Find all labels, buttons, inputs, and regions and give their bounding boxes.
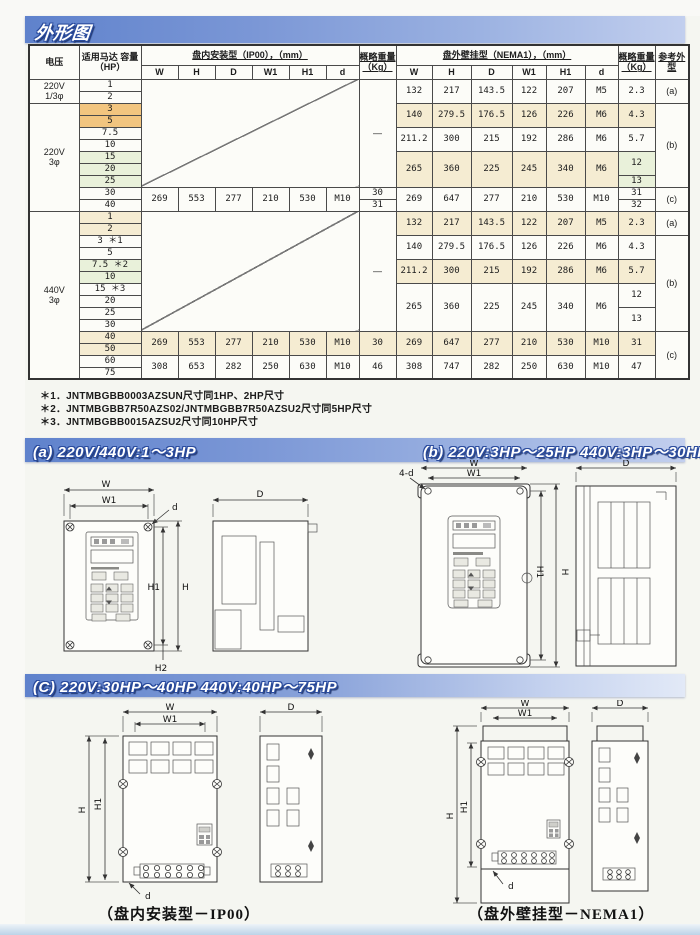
page-bottom-strip <box>0 924 700 935</box>
ip00-w1-cell: 210 <box>252 331 289 355</box>
nema-h-cell: 279.5 <box>432 103 471 127</box>
nema-w-cell: 211.2 <box>396 259 432 283</box>
ip00-h1-cell: 530 <box>289 187 326 211</box>
voltage-line2: 1/3φ <box>30 91 79 101</box>
nema-screw-cell: M6 <box>585 127 618 151</box>
nema-d-cell: 282 <box>471 355 512 379</box>
bottom-cover <box>481 869 569 903</box>
hp-cell: 40 <box>79 199 141 211</box>
nema-h1-cell: 340 <box>546 283 585 331</box>
nema-screw-cell: M6 <box>585 235 618 259</box>
nema-screw-cell: M5 <box>585 211 618 235</box>
nema-w1-cell: 122 <box>512 211 546 235</box>
diagonal-empty-cell <box>141 211 359 331</box>
nema-w1-cell: 210 <box>512 331 546 355</box>
ip00-w-cell: 269 <box>141 187 178 211</box>
col-header-h1: H1 <box>289 65 326 79</box>
nema-h1-cell: 207 <box>546 211 585 235</box>
dim-label-w1: W1 <box>518 709 533 719</box>
hp-cell: 75 <box>79 367 141 379</box>
nema-d-cell: 215 <box>471 259 512 283</box>
col-header-h: H <box>432 65 471 79</box>
hp-cell: 2 <box>79 91 141 103</box>
nema-h1-cell: 226 <box>546 235 585 259</box>
ref-cell: (b) <box>655 235 689 331</box>
hp-cell: 25 <box>79 307 141 319</box>
hp-cell: 10 <box>79 271 141 283</box>
nema-w-cell: 140 <box>396 235 432 259</box>
nema-screw-cell: M10 <box>585 187 618 211</box>
title-bar: 外形图 <box>25 16 685 43</box>
hp-cell: 10 <box>79 139 141 151</box>
dim-label-h: H <box>559 569 569 576</box>
ip00-h-cell: 653 <box>178 355 215 379</box>
col-header-w1: W1 <box>252 65 289 79</box>
hp-cell: 5 <box>79 247 141 259</box>
dim-label-d-small: d <box>145 892 151 902</box>
drawing-b-side-view: D <box>576 460 676 666</box>
drawing-a-side-view: D <box>213 490 317 651</box>
dim-label-h: H <box>182 583 189 593</box>
dim-label-h1: H1 <box>534 566 544 579</box>
nema-w-cell: 265 <box>396 151 432 187</box>
col-header-motor-hp: 适用马达 容量（HP） <box>79 45 141 79</box>
hp-cell: 25 <box>79 175 141 187</box>
ref-cell: (c) <box>655 187 689 211</box>
nema-w-cell: 132 <box>396 79 432 103</box>
nema-h1-cell: 286 <box>546 259 585 283</box>
nema-w1-cell: 122 <box>512 79 546 103</box>
hp-cell: 20 <box>79 163 141 175</box>
dim-label-w1: W1 <box>102 496 117 506</box>
nema-weight-cell: 13 <box>618 307 655 331</box>
col-header-voltage: 电压 <box>29 45 79 79</box>
voltage-line1: 220V <box>30 81 79 91</box>
diagonal-empty-cell <box>141 79 359 187</box>
nema-d-cell: 176.5 <box>471 103 512 127</box>
nema-w1-cell: 192 <box>512 127 546 151</box>
section-b-label: (b) 220V:3HP～25HP 440V:3HP～30HP <box>423 441 700 462</box>
nema-screw-cell: M6 <box>585 103 618 127</box>
drawing-c-nema1: W W1 H H1 d <box>445 700 695 910</box>
col-header-nema-weight: 概略重量（Kg） <box>618 45 655 79</box>
weight-dash-cell: — <box>359 79 396 187</box>
col-header-h1: H1 <box>546 65 585 79</box>
caption-ip00: （盘内安装型－IP00） <box>98 903 260 924</box>
col-header-h: H <box>178 65 215 79</box>
dim-label-h: H <box>446 813 456 820</box>
footnote-list: ＊1．JNTMBGBB0003AZSUN尺寸同1HP、2HP尺寸 ＊2．JNTM… <box>40 390 372 429</box>
ip00-weight-cell: 31 <box>359 199 396 211</box>
col-header-ref: 参考外型 <box>655 45 689 79</box>
dimension-table: 电压 适用马达 容量（HP） 盘内安装型（IP00），（mm） 概略重量（Kg）… <box>28 44 690 380</box>
drawing-c-ip00: W W1 H H1 d <box>55 700 365 902</box>
nema-weight-cell: 12 <box>618 283 655 307</box>
drawing-c-ip00-side-view: D <box>260 703 322 882</box>
hp-cell: 7.5 ＊2 <box>79 259 141 271</box>
voltage-line1: 440V <box>30 285 79 295</box>
hp-cell: 30 <box>79 187 141 199</box>
footnote-1: ＊1．JNTMBGBB0003AZSUN尺寸同1HP、2HP尺寸 <box>40 390 372 403</box>
ip00-weight-cell: 46 <box>359 355 396 379</box>
heatsink-cap <box>483 726 567 741</box>
hp-cell: 40 <box>79 331 141 343</box>
hp-cell: 2 <box>79 223 141 235</box>
col-header-ip00-weight: 概略重量（Kg） <box>359 45 396 79</box>
dim-label-h1: H1 <box>148 583 161 593</box>
dim-label-d: D <box>617 700 624 709</box>
hp-cell: 50 <box>79 343 141 355</box>
col-header-w1: W1 <box>512 65 546 79</box>
dim-label-4d: 4-d <box>399 469 414 479</box>
section-a-label: (a) 220V/440V:1～3HP <box>33 441 196 462</box>
hp-cell: 3 ＊1 <box>79 235 141 247</box>
nema-h1-cell: 630 <box>546 355 585 379</box>
drawing-c-nema1-front-view: W W1 H H1 d <box>446 700 574 903</box>
nema-h-cell: 279.5 <box>432 235 471 259</box>
nema-h1-cell: 340 <box>546 151 585 187</box>
ref-cell: (a) <box>655 79 689 103</box>
nema-screw-cell: M6 <box>585 283 618 331</box>
nema-d-cell: 225 <box>471 283 512 331</box>
nema-d-cell: 277 <box>471 187 512 211</box>
nema-screw-cell: M10 <box>585 331 618 355</box>
nema-d-cell: 143.5 <box>471 211 512 235</box>
voltage-line2: 3φ <box>30 157 79 167</box>
nema-weight-cell: 31 <box>618 331 655 355</box>
nema-h-cell: 360 <box>432 283 471 331</box>
caption-nema: （盘外壁挂型－NEMA1） <box>468 903 654 924</box>
nema-h-cell: 300 <box>432 127 471 151</box>
nema-weight-cell: 32 <box>618 199 655 211</box>
hp-cell: 30 <box>79 319 141 331</box>
nema-w-cell: 269 <box>396 331 432 355</box>
ip00-weight-cell: 30 <box>359 331 396 355</box>
nema-h-cell: 217 <box>432 79 471 103</box>
nema-h-cell: 217 <box>432 211 471 235</box>
nema-d-cell: 143.5 <box>471 79 512 103</box>
nema-h-cell: 300 <box>432 259 471 283</box>
ref-cell: (c) <box>655 331 689 379</box>
nema-d-cell: 176.5 <box>471 235 512 259</box>
page-title: 外形图 <box>34 19 92 45</box>
nema-weight-cell: 2.3 <box>618 211 655 235</box>
nema-weight-cell: 4.3 <box>618 103 655 127</box>
hp-cell: 3 <box>79 103 141 115</box>
nema-w1-cell: 126 <box>512 103 546 127</box>
hp-cell: 7.5 <box>79 127 141 139</box>
section-c-label: (C) 220V:30HP～40HP 440V:40HP～75HP <box>33 676 337 697</box>
ip00-w1-cell: 250 <box>252 355 289 379</box>
ip00-w-cell: 269 <box>141 331 178 355</box>
ip00-h1-cell: 530 <box>289 331 326 355</box>
dim-label-h1: H1 <box>94 798 104 811</box>
drawing-a: W W1 d H1 H H2 <box>48 464 393 676</box>
nema-screw-cell: M6 <box>585 151 618 187</box>
nema-h-cell: 747 <box>432 355 471 379</box>
voltage-cell: 440V 3φ <box>29 211 79 379</box>
dim-label-d: D <box>623 460 630 469</box>
hp-cell: 5 <box>79 115 141 127</box>
dim-label-d-small: d <box>172 503 178 513</box>
drawing-b: 4-d W W1 H1 H <box>398 460 690 672</box>
nema-weight-cell: 5.7 <box>618 127 655 151</box>
col-header-w: W <box>141 65 178 79</box>
weight-dash-cell: — <box>359 211 396 331</box>
voltage-cell: 220V 1/3φ <box>29 79 79 103</box>
hp-cell: 15 ＊3 <box>79 283 141 295</box>
dim-label-d: D <box>257 490 264 500</box>
ip00-weight-cell: 30 <box>359 187 396 199</box>
col-header-d: D <box>471 65 512 79</box>
hp-cell: 60 <box>79 355 141 367</box>
dim-label-w: W <box>470 460 479 469</box>
nema-h1-cell: 530 <box>546 187 585 211</box>
nema-w-cell: 269 <box>396 187 432 211</box>
nema-d-cell: 225 <box>471 151 512 187</box>
nema-weight-cell: 5.7 <box>618 259 655 283</box>
ip00-h1-cell: 630 <box>289 355 326 379</box>
hp-cell: 1 <box>79 211 141 223</box>
dim-label-w: W <box>102 480 111 490</box>
nema-w-cell: 211.2 <box>396 127 432 151</box>
voltage-cell: 220V 3φ <box>29 103 79 211</box>
page-margin-left <box>0 0 25 935</box>
drawing-c-nema1-side-view: D <box>592 700 648 891</box>
nema-screw-cell: M5 <box>585 79 618 103</box>
nema-h1-cell: 226 <box>546 103 585 127</box>
dim-label-w1: W1 <box>467 469 482 479</box>
nema-w-cell: 265 <box>396 283 432 331</box>
nema-w-cell: 140 <box>396 103 432 127</box>
col-header-ip00-group: 盘内安装型（IP00），（mm） <box>141 45 359 65</box>
hp-cell: 20 <box>79 295 141 307</box>
nema-h1-cell: 530 <box>546 331 585 355</box>
nema-w1-cell: 192 <box>512 259 546 283</box>
nema-h-cell: 647 <box>432 187 471 211</box>
col-header-dd: d <box>585 65 618 79</box>
ip00-w-cell: 308 <box>141 355 178 379</box>
ip00-d-cell: 277 <box>215 331 252 355</box>
ref-cell: (a) <box>655 211 689 235</box>
nema-w1-cell: 126 <box>512 235 546 259</box>
nema-h1-cell: 286 <box>546 127 585 151</box>
dim-label-h1: H1 <box>460 801 470 814</box>
heatsink-cap <box>597 726 643 741</box>
hp-cell: 15 <box>79 151 141 163</box>
ip00-d-cell: 282 <box>215 355 252 379</box>
nema-screw-cell: M10 <box>585 355 618 379</box>
nema-w-cell: 132 <box>396 211 432 235</box>
hp-cell: 1 <box>79 79 141 91</box>
nema-d-cell: 277 <box>471 331 512 355</box>
col-header-nema-group: 盘外壁挂型（NEMA1），（mm） <box>396 45 618 65</box>
nema-weight-cell: 31 <box>618 187 655 199</box>
nema-w-cell: 308 <box>396 355 432 379</box>
nema-w1-cell: 250 <box>512 355 546 379</box>
ip00-screw-cell: M10 <box>326 187 359 211</box>
document-page: 外形图 电压 适用马达 容量（HP） 盘内安装型（IP00），（mm） 概略重量… <box>0 0 700 935</box>
drawing-b-front-view: 4-d W W1 H1 H <box>399 460 569 667</box>
dim-label-w1: W1 <box>163 715 178 725</box>
nema-screw-cell: M6 <box>585 259 618 283</box>
dim-label-w: W <box>166 703 175 713</box>
nema-h1-cell: 207 <box>546 79 585 103</box>
drawing-a-front-view: W W1 d H1 H H2 <box>64 480 189 674</box>
nema-weight-cell: 47 <box>618 355 655 379</box>
ip00-screw-cell: M10 <box>326 355 359 379</box>
page-margin-top <box>0 0 700 16</box>
ip00-screw-cell: M10 <box>326 331 359 355</box>
nema-d-cell: 215 <box>471 127 512 151</box>
ip00-d-cell: 277 <box>215 187 252 211</box>
voltage-line1: 220V <box>30 147 79 157</box>
nema-h-cell: 647 <box>432 331 471 355</box>
nema-h-cell: 360 <box>432 151 471 187</box>
nema-w1-cell: 245 <box>512 283 546 331</box>
footnote-3: ＊3．JNTMBGBB0015AZSU2尺寸同10HP尺寸 <box>40 416 372 429</box>
dim-label-h2: H2 <box>155 664 168 674</box>
dim-label-h: H <box>78 807 88 814</box>
section-c-header-bar: (C) 220V:30HP～40HP 440V:40HP～75HP <box>25 674 685 697</box>
nema-weight-cell: 12 <box>618 151 655 175</box>
col-header-dd: d <box>326 65 359 79</box>
ref-cell: (b) <box>655 103 689 187</box>
ip00-w1-cell: 210 <box>252 187 289 211</box>
section-ab-header-bar: (a) 220V/440V:1～3HP (b) 220V:3HP～25HP 44… <box>25 438 685 462</box>
voltage-line2: 3φ <box>30 295 79 305</box>
nema-weight-cell: 13 <box>618 175 655 187</box>
col-header-d: D <box>215 65 252 79</box>
dim-label-d-small: d <box>508 882 514 892</box>
drawing-c-ip00-front-view: W W1 H H1 d <box>78 703 222 902</box>
ip00-h-cell: 553 <box>178 187 215 211</box>
nema-weight-cell: 2.3 <box>618 79 655 103</box>
ip00-h-cell: 553 <box>178 331 215 355</box>
nema-weight-cell: 4.3 <box>618 235 655 259</box>
dim-label-w: W <box>521 700 530 709</box>
nema-w1-cell: 245 <box>512 151 546 187</box>
dim-label-d: D <box>288 703 295 713</box>
col-header-w: W <box>396 65 432 79</box>
nema-w1-cell: 210 <box>512 187 546 211</box>
footnote-2: ＊2．JNTMBGBB7R50AZS02/JNTMBGBB7R50AZSU2尺寸… <box>40 403 372 416</box>
